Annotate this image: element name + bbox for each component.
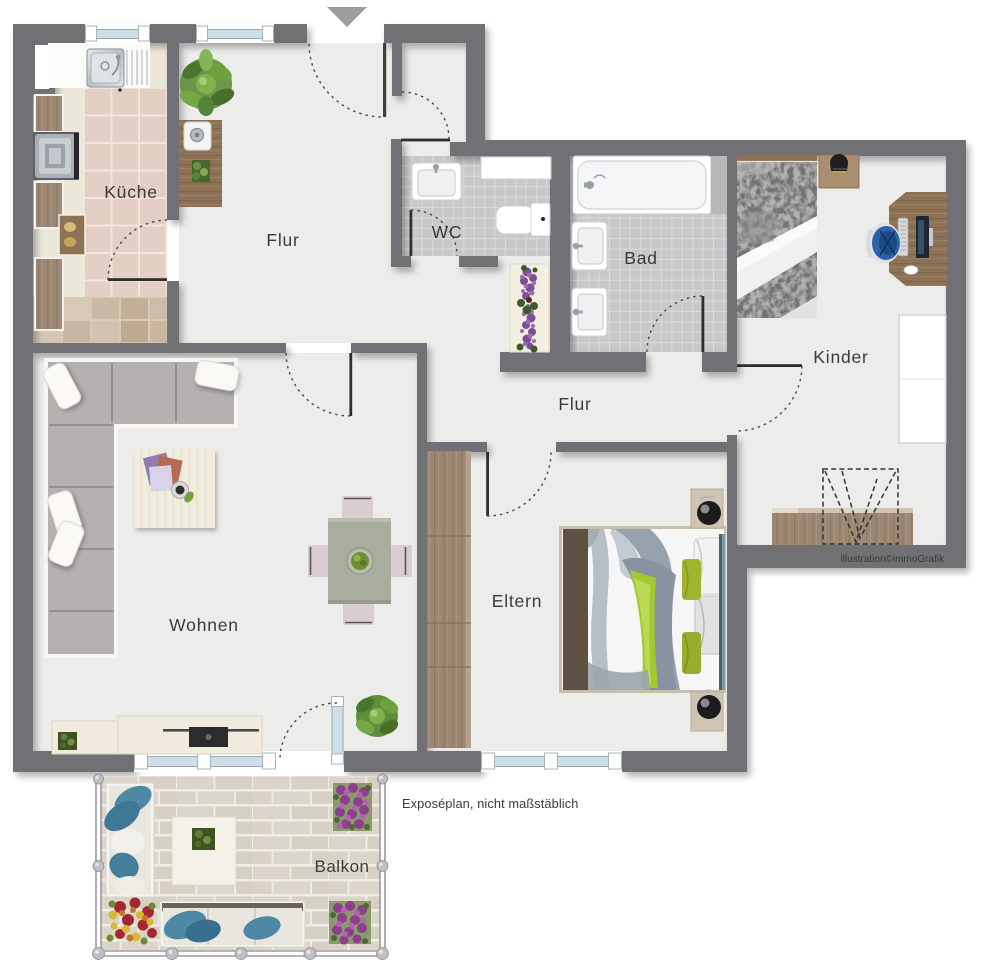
svg-text:Wohnen: Wohnen	[169, 615, 239, 635]
svg-text:Flur: Flur	[558, 394, 591, 414]
svg-text:Balkon: Balkon	[315, 857, 370, 876]
svg-text:Exposéplan, nicht maßstäblich: Exposéplan, nicht maßstäblich	[402, 796, 578, 811]
svg-text:Kinder: Kinder	[813, 347, 868, 367]
svg-text:WC: WC	[432, 222, 463, 242]
svg-text:Flur: Flur	[266, 230, 299, 250]
svg-text:illustration©immoGrafik: illustration©immoGrafik	[840, 554, 945, 565]
svg-text:Küche: Küche	[104, 182, 158, 202]
svg-text:Eltern: Eltern	[492, 591, 543, 611]
svg-text:Bad: Bad	[624, 248, 658, 268]
